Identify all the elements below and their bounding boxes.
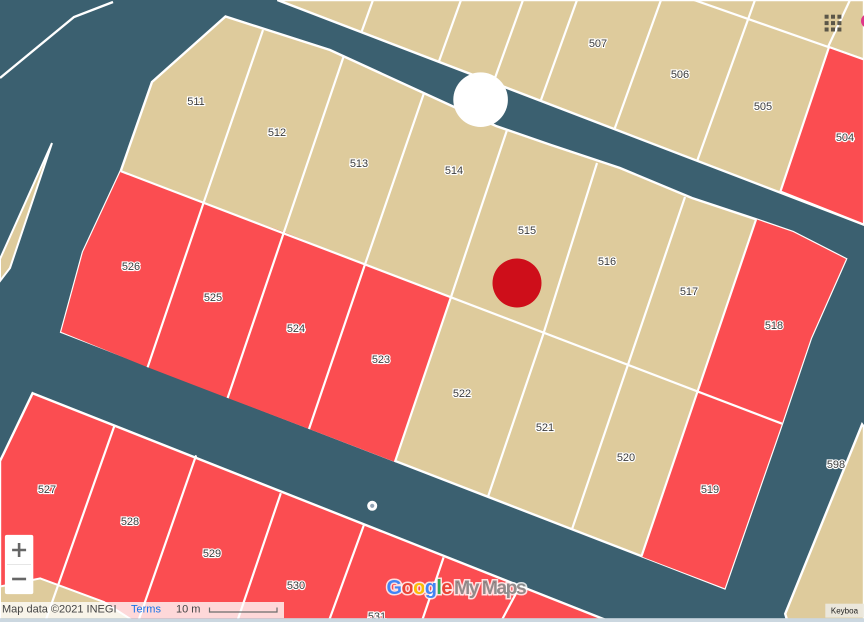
svg-text:Map data ©2021 INEGI: Map data ©2021 INEGI [2,604,117,616]
svg-text:530: 530 [287,580,305,592]
svg-text:Google: Google [387,577,453,599]
svg-text:527: 527 [38,484,56,496]
svg-text:515: 515 [518,225,536,237]
svg-text:518: 518 [765,320,783,332]
svg-text:511: 511 [187,96,205,108]
svg-text:520: 520 [617,452,635,464]
svg-text:513: 513 [350,158,368,170]
svg-text:504: 504 [836,132,854,144]
svg-text:516: 516 [598,256,616,268]
svg-text:524: 524 [287,323,305,335]
svg-text:598: 598 [827,459,845,471]
svg-text:Keyboa: Keyboa [831,607,859,616]
svg-text:519: 519 [701,484,719,496]
svg-text:521: 521 [536,422,554,434]
svg-text:517: 517 [680,286,698,298]
svg-text:529: 529 [203,548,221,560]
svg-text:Terms: Terms [131,604,161,616]
svg-text:506: 506 [671,69,689,81]
svg-text:512: 512 [268,127,286,139]
svg-text:525: 525 [204,292,222,304]
svg-text:522: 522 [453,388,471,400]
svg-text:505: 505 [754,101,772,113]
svg-text:10 m: 10 m [176,604,200,616]
svg-text:526: 526 [122,261,140,273]
svg-text:My Maps: My Maps [454,577,527,599]
svg-text:523: 523 [372,354,390,366]
svg-text:528: 528 [121,516,139,528]
svg-text:507: 507 [589,38,607,50]
svg-text:514: 514 [445,165,463,177]
